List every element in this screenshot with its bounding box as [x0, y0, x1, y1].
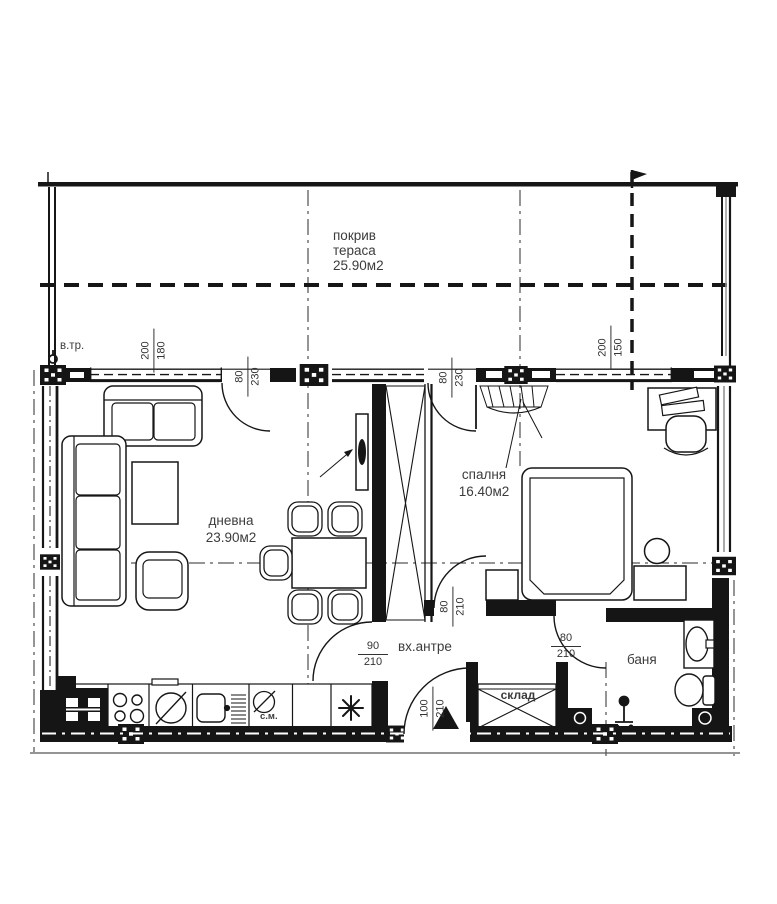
floor-plan-drawing [0, 0, 777, 904]
kitchen-counter [58, 676, 372, 728]
bedroom-label: спалня 16.40м2 [450, 466, 518, 500]
toilet-icon [675, 674, 715, 706]
floor-siphon-icon [568, 708, 718, 728]
dimension-bath-door: 80210 [551, 633, 581, 660]
boiler-asterisk-icon [339, 696, 363, 720]
dimension-bedroom-terrace-door: 80230 [438, 358, 465, 398]
bath-label: баня [627, 652, 657, 667]
bath-sink-icon [684, 620, 714, 668]
dimension-living-terrace-door: 80230 [234, 357, 261, 397]
hall-label: вх.антре [398, 639, 452, 654]
floor-plan: покрив тераса 25.90м2 дневна 23.90м2 спа… [0, 0, 777, 904]
window-bedroom [556, 368, 672, 383]
shower-mixer-icon [615, 697, 634, 730]
dresser [634, 566, 686, 600]
stool [645, 539, 670, 564]
radiator [480, 386, 548, 413]
shaft [386, 384, 432, 622]
living-room-label: дневна 23.90м2 [194, 512, 268, 546]
shaft-wall [372, 384, 386, 622]
living-room-furniture [62, 386, 368, 624]
vent-pipe-label: в.тр. [60, 340, 84, 352]
bath-fixtures [568, 620, 718, 730]
washing-machine-label: с.м. [260, 711, 290, 722]
dining-table [292, 538, 366, 588]
bedroom-furniture [486, 387, 716, 600]
axis-flag-icon [632, 170, 647, 180]
dimension-living-hall-door: 90210 [358, 641, 388, 668]
coffee-table [132, 462, 178, 524]
dimension-entrance-door: 100210 [419, 687, 446, 731]
terrace-label: покрив тераса 25.90м2 [333, 228, 384, 273]
dimension-bedroom-door: 80210 [439, 587, 466, 627]
bed [522, 468, 632, 600]
storage-label: склад [497, 688, 539, 702]
nightstand [486, 570, 518, 600]
window-mid [332, 369, 424, 380]
dimension-living-window: 200180 [140, 329, 167, 373]
desk-chair [666, 416, 706, 452]
dimension-bedroom-window: 200150 [597, 326, 624, 370]
